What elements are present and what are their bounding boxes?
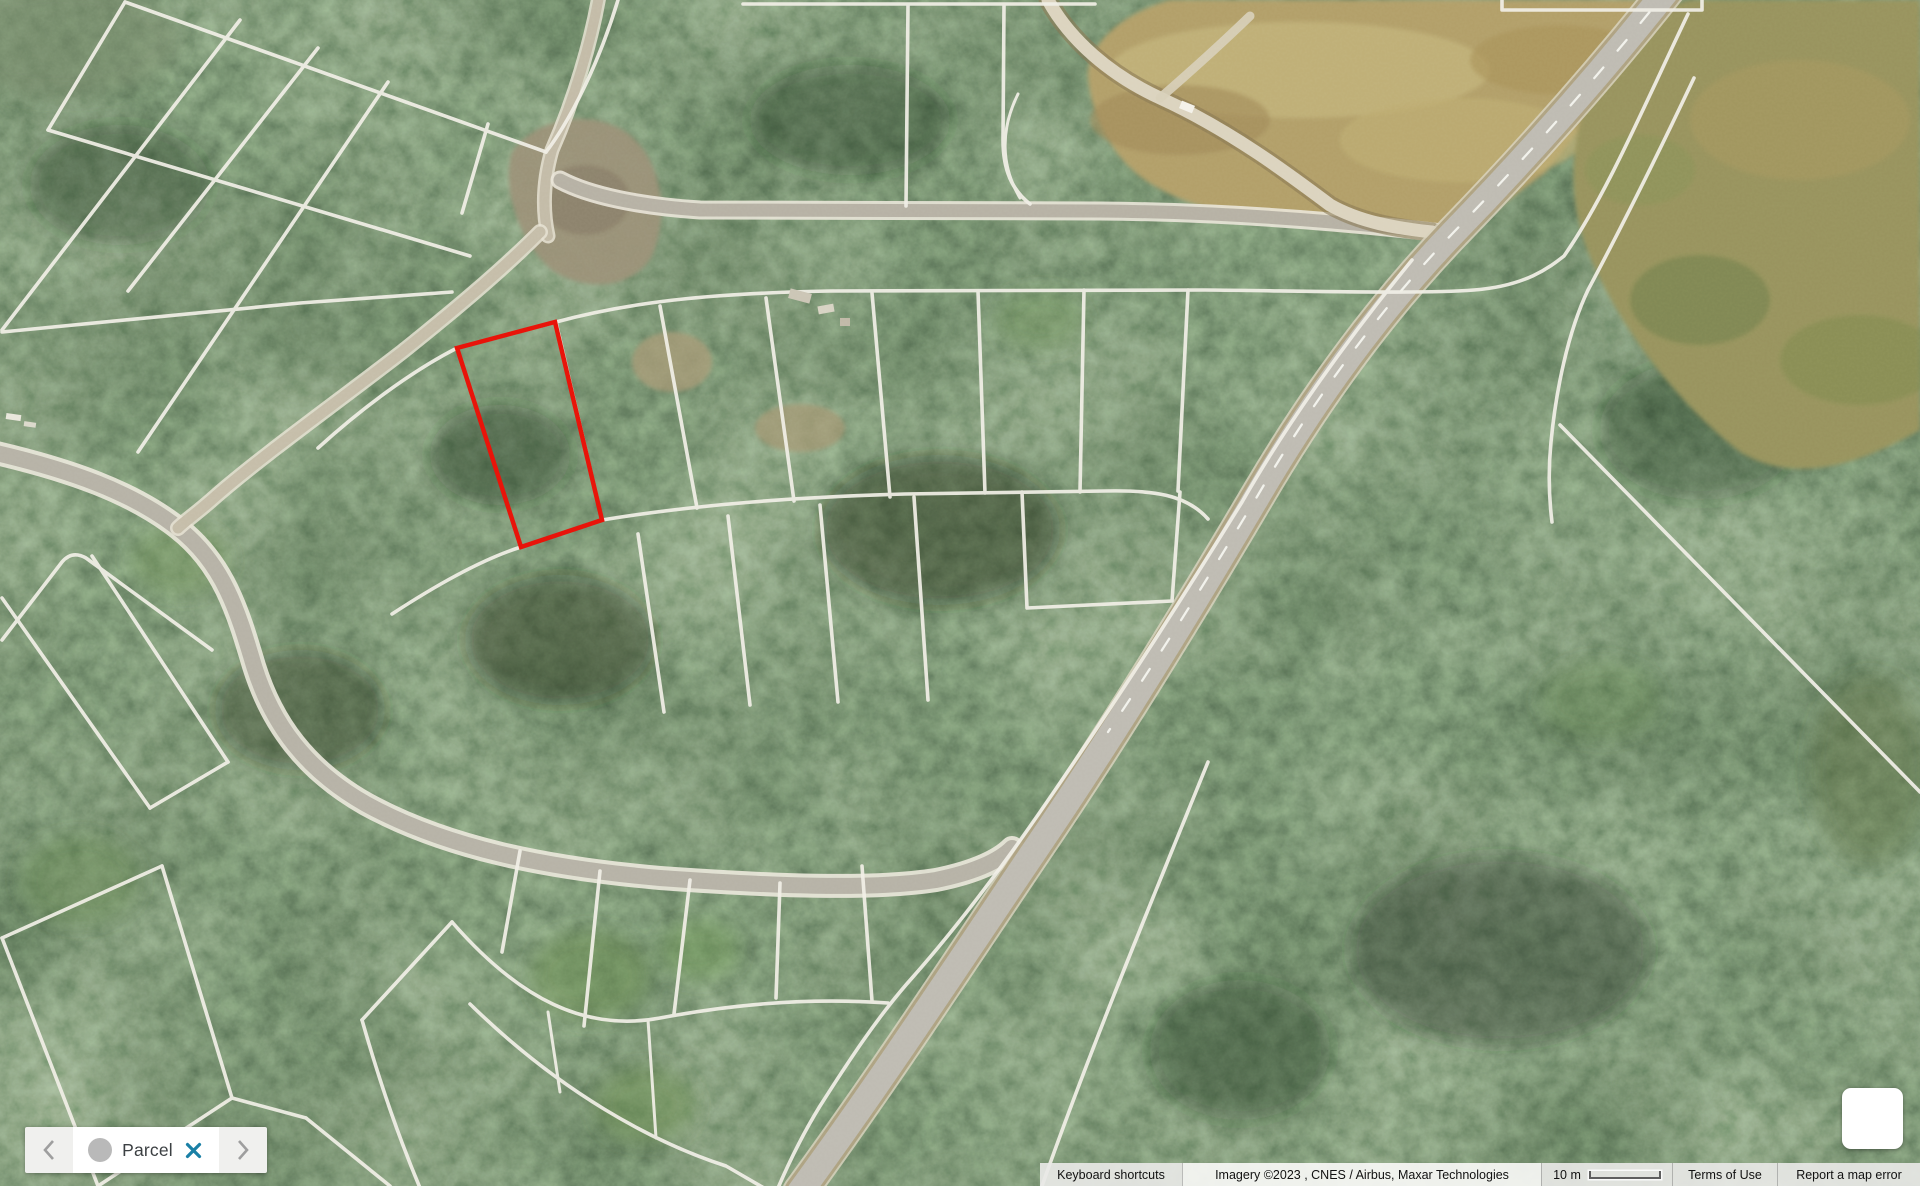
close-icon (185, 1142, 202, 1159)
previous-parcel-button[interactable] (25, 1127, 73, 1173)
imagery-credit-text: Imagery ©2023 , CNES / Airbus, Maxar Tec… (1215, 1168, 1509, 1182)
imagery-grain (0, 0, 1920, 1186)
scale-label: 10 m (1553, 1168, 1581, 1182)
terms-of-use-link[interactable]: Terms of Use (1688, 1168, 1762, 1182)
chevron-right-icon (235, 1138, 251, 1162)
report-error-segment: Report a map error (1777, 1163, 1920, 1186)
attribution-bar: Keyboard shortcuts Imagery ©2023 , CNES … (1040, 1163, 1920, 1186)
close-parcel-button[interactable] (183, 1140, 204, 1161)
map-scale-segment: 10 m (1541, 1163, 1672, 1186)
parcel-chip-label: Parcel (122, 1140, 173, 1161)
map-application-window: Parcel Keyboard shortcuts Imagery ©2023 … (0, 0, 1920, 1186)
parcel-carousel: Parcel (25, 1127, 267, 1173)
report-map-error-link[interactable]: Report a map error (1796, 1168, 1902, 1182)
parcel-chip[interactable]: Parcel (73, 1127, 219, 1173)
parcel-marker-icon (88, 1138, 112, 1162)
imagery-credit-segment: Imagery ©2023 , CNES / Airbus, Maxar Tec… (1182, 1163, 1541, 1186)
chevron-left-icon (41, 1138, 57, 1162)
terms-of-use-segment: Terms of Use (1672, 1163, 1777, 1186)
next-parcel-button[interactable] (219, 1127, 267, 1173)
map-control-button[interactable] (1842, 1088, 1903, 1149)
keyboard-shortcuts-segment: Keyboard shortcuts (1040, 1163, 1182, 1186)
satellite-map (0, 0, 1920, 1186)
keyboard-shortcuts-button[interactable]: Keyboard shortcuts (1057, 1168, 1165, 1182)
scale-bar (1589, 1171, 1661, 1179)
